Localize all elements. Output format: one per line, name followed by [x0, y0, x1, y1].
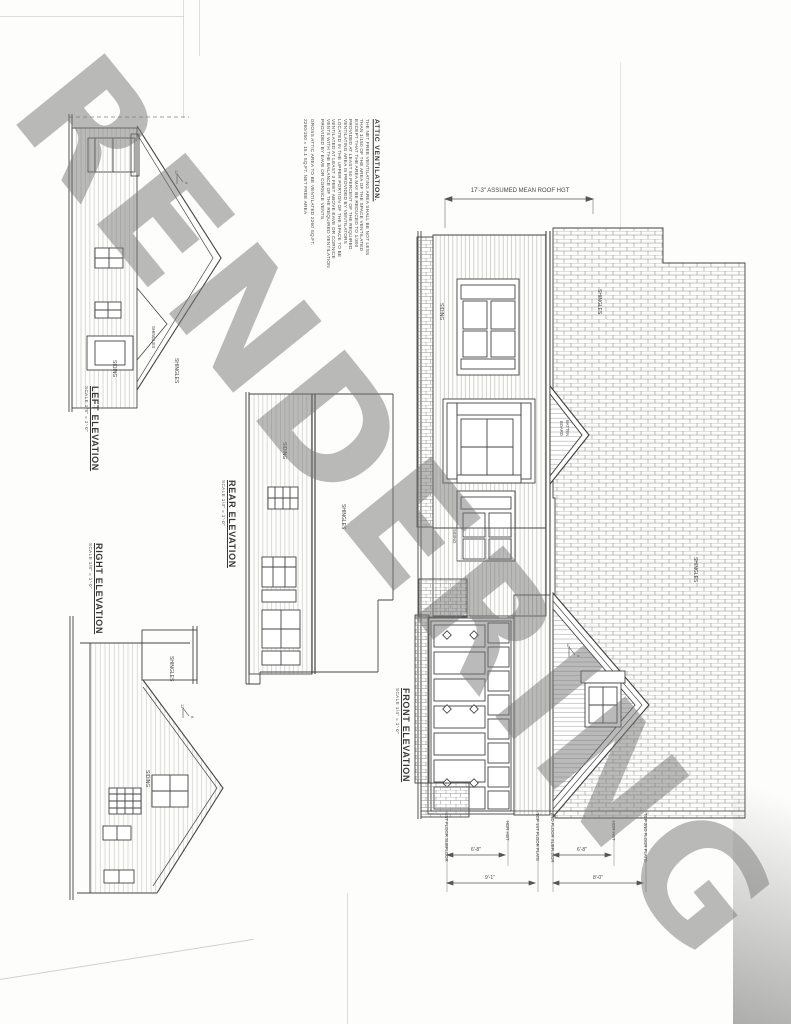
roof-height-dimension: 17'-3" ASSUMED MEAN ROOF HGT: [425, 178, 610, 233]
board-label: BOARD: [559, 421, 564, 436]
batten-label: BATTEN: [565, 420, 570, 436]
blueprint-sheet: 12 8 SIDING SHINGLES SHINGLES LEFT ELEVA…: [0, 0, 791, 1024]
second-plate-label: TOP 2ND FLOOR PLATE: [643, 813, 648, 862]
hdr-dim-text: 6'-8": [577, 847, 587, 853]
front-elevation-drawing: SIDING SIDING SHINGLES SHINGLES BOARD BA…: [413, 223, 748, 828]
window: [103, 826, 131, 840]
front-elevation-title: FRONT ELEVATION: [401, 688, 411, 780]
attic-note-line: THE NET FREE VENTILATING AREA SHALL BE N…: [364, 119, 370, 315]
attic-note-line: PROVIDED AT LEAST 50 PERCENT OF THE REQU…: [347, 119, 353, 315]
fascia-line: [546, 231, 550, 595]
siding-label: SIDING: [438, 303, 444, 320]
ground-line: [70, 616, 73, 900]
pitch-run-label: 12: [566, 643, 570, 647]
hdr-hgt-label: HDR HGT: [611, 821, 616, 841]
scan-crease-line: [347, 893, 348, 1024]
front-elevation-scale: SCALE 1/4" = 1'-0": [395, 688, 400, 780]
roof-height-text: 17'-3" ASSUMED MEAN ROOF HGT: [471, 188, 570, 194]
pitch-rise-label: 8: [190, 716, 194, 718]
right-elevation-scale: SCALE 1/8" = 1'-0": [88, 543, 93, 643]
roof-edge: [137, 126, 221, 390]
side-wall: [90, 643, 223, 893]
window: [457, 279, 519, 375]
attic-note-line: VENTS WITH THE BALANCE OF THE REQUIRED V…: [325, 119, 331, 315]
hdr-dim-text: 6'-8": [471, 847, 481, 853]
stone-chimney: [417, 237, 433, 527]
window: [95, 302, 121, 318]
pitch-marker: [183, 708, 189, 718]
siding-label: SIDING: [452, 529, 457, 543]
attic-note-line: PROVIDED BY EAVE OR CORNICE VENTS.: [319, 119, 325, 315]
shingles-label: SHINGLES: [173, 358, 179, 384]
shingles-label: SHINGLES: [168, 656, 174, 682]
siding-strip: [514, 595, 550, 815]
front-elevation-title-block: FRONT ELEVATION SCALE 1/4" = 1'-0": [395, 688, 487, 704]
window: [262, 610, 300, 665]
shingles-label: SHINGLES: [596, 289, 602, 315]
first-height-text: 9'-1": [485, 875, 495, 881]
siding-label: SIDING: [144, 770, 150, 787]
first-plate-label: TOP 1ST FLOOR PLATE: [535, 813, 540, 861]
rear-elevation-scale: SCALE 1/4" = 1'-0": [221, 480, 226, 572]
attic-note-line: LOCATED IN THE UPPER PORTION OF THE SPAC…: [336, 119, 342, 315]
floor-dimensions: 1ST FLOOR SUBFLOOR HDR HGT TOP 1ST FLOOR…: [428, 806, 678, 911]
pitch-run-label: 12: [174, 170, 178, 174]
pitch-rise-label: 8: [576, 655, 580, 657]
scan-crease-line: [183, 0, 184, 118]
window: [104, 870, 134, 883]
pitch-rise-label: 8: [184, 182, 188, 184]
gable-window: [581, 671, 625, 727]
window: [262, 557, 296, 602]
door: [87, 336, 133, 370]
attic-note-line: VENTILATED AT LEAST 3 FEET ABOVE EAVE OR…: [331, 119, 337, 315]
shingles-label: SHINGLES: [151, 326, 156, 348]
shingles-label: SHINGLES: [692, 557, 698, 583]
scan-crease-line: [199, 0, 200, 56]
pitch-run-label: 12: [180, 704, 184, 708]
brick-patch: [419, 579, 467, 617]
right-elevation-title-block: RIGHT ELEVATION SCALE 1/8" = 1'-0": [88, 543, 188, 559]
shingles-label: SHINGLES: [340, 504, 346, 530]
pitch-marker: [177, 174, 183, 184]
attic-note-line: VENTILATING AREA IS PROVIDED BY VENTILAT…: [342, 119, 348, 315]
rear-elevation-drawing: SIDING SHINGLES: [230, 372, 405, 702]
attic-area-calc: GROSS ATTIC AREA TO BE VENTILATED 2260 S…: [308, 119, 314, 315]
window: [95, 248, 123, 268]
rear-elevation-title-block: REAR ELEVATION SCALE 1/4" = 1'-0": [221, 480, 313, 496]
hdr-hgt-label: HDR HGT: [505, 821, 510, 841]
scan-pencil-line: [0, 939, 253, 982]
right-elevation-title: RIGHT ELEVATION: [94, 543, 104, 643]
attic-note-title: ATTIC VENTILATION.: [373, 119, 380, 315]
scan-crease-line: [0, 16, 184, 17]
left-elevation-scale: SCALE 1/8" = 1'-0": [84, 386, 89, 476]
window: [152, 775, 188, 807]
rear-elevation-title: REAR ELEVATION: [227, 480, 237, 572]
left-elevation-title-block: LEFT ELEVATION SCALE 1/8" = 1'-0": [84, 386, 174, 402]
attic-note-line: THAN 1/150 OF THE AREA OF THE SPACE VENT…: [359, 119, 365, 315]
window: [109, 788, 141, 814]
left-elevation-drawing: 12 8 SIDING SHINGLES SHINGLES: [57, 108, 242, 423]
right-elevation-drawing: 12 8 SIDING SHINGLES: [57, 608, 247, 908]
entry-window: [443, 399, 535, 483]
scan-crease-line: [620, 62, 621, 228]
left-elevation-title: LEFT ELEVATION: [90, 386, 100, 476]
siding-label: SIDING: [281, 442, 287, 459]
second-height-text: 8'-0": [593, 875, 603, 881]
siding-label: SIDING: [111, 360, 117, 377]
wall-roof-divider: [312, 394, 315, 674]
attic-note-line: EXCEPT THAT THE AREA MAY BE REDUCED TO 1…: [353, 119, 359, 315]
